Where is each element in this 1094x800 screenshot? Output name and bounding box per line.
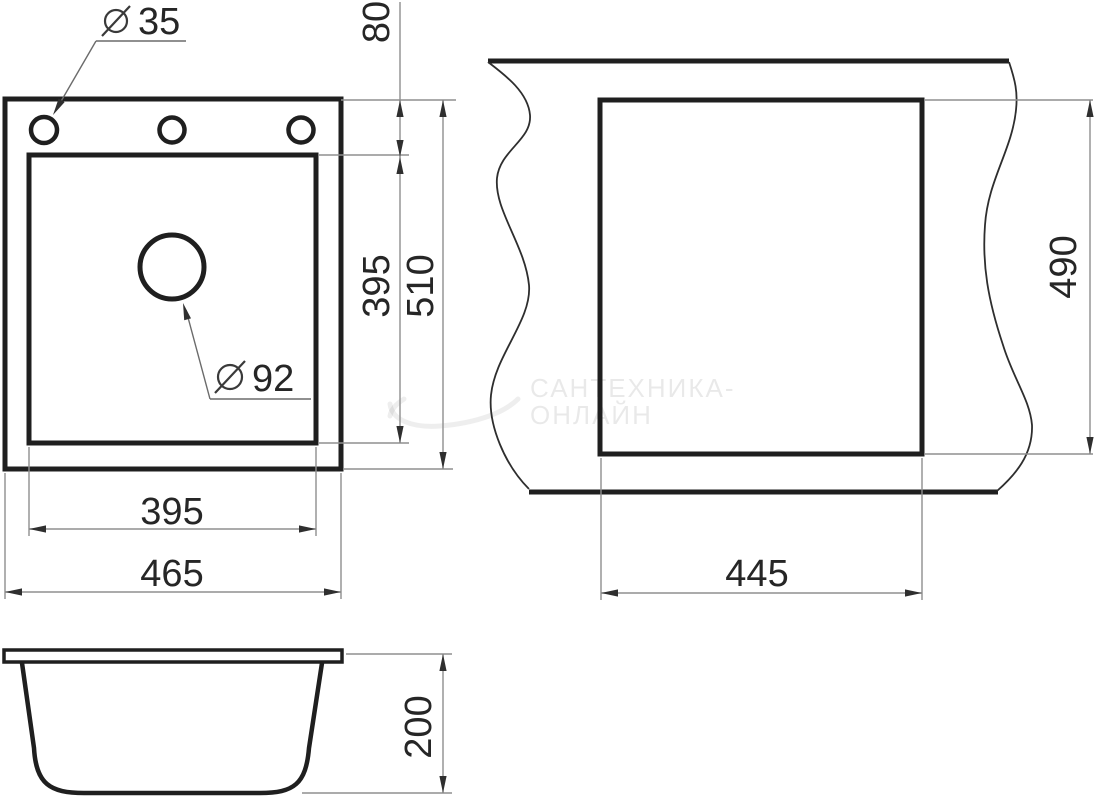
height-label: 200	[398, 695, 440, 758]
drain-diameter-label: 92	[252, 358, 294, 400]
rim-offset-label: 80	[356, 1, 398, 43]
cutout-view: 490 445	[488, 61, 1094, 600]
diameter-icon	[215, 361, 245, 393]
countertop-right-break-line	[984, 62, 1032, 491]
cutout-arrows	[601, 100, 1094, 597]
plan-arrows	[5, 100, 447, 596]
plan-view: 35 92 80 395 510 395 465	[5, 1, 456, 599]
drain-hole	[140, 235, 204, 299]
cutout-depth-label: 490	[1043, 235, 1085, 298]
plan-extension-lines	[5, 100, 456, 599]
side-view: 200	[4, 650, 452, 793]
faucet-hole-3	[289, 118, 314, 143]
cutout-width-label: 445	[725, 553, 788, 595]
cutout-dimension-lines	[601, 100, 1090, 593]
sink-bowl-profile	[22, 663, 322, 793]
watermark: САНТЕХНИКА- ОНЛАЙН	[390, 373, 736, 430]
technical-drawing-sink: САНТЕХНИКА- ОНЛАЙН	[0, 0, 1094, 800]
faucet-hole-1	[31, 117, 57, 143]
watermark-line1: САНТЕХНИКА-	[530, 373, 736, 403]
diameter-icon	[102, 6, 130, 36]
bowl-depth-label: 395	[356, 254, 398, 317]
faucet-hole-diameter-label: 35	[138, 1, 180, 43]
overall-width-label: 465	[140, 553, 203, 595]
watermark-logo-swirl	[390, 399, 518, 426]
sink-rim-profile	[4, 650, 342, 662]
drain-diameter-callout: 92	[183, 303, 311, 400]
cutout-extension-lines	[601, 100, 1093, 600]
watermark-line2: ОНЛАЙН	[530, 400, 653, 430]
overall-depth-label: 510	[400, 254, 442, 317]
bowl-width-label: 395	[140, 491, 203, 533]
faucet-hole-2	[160, 118, 185, 143]
countertop-left-break-line	[488, 62, 530, 489]
